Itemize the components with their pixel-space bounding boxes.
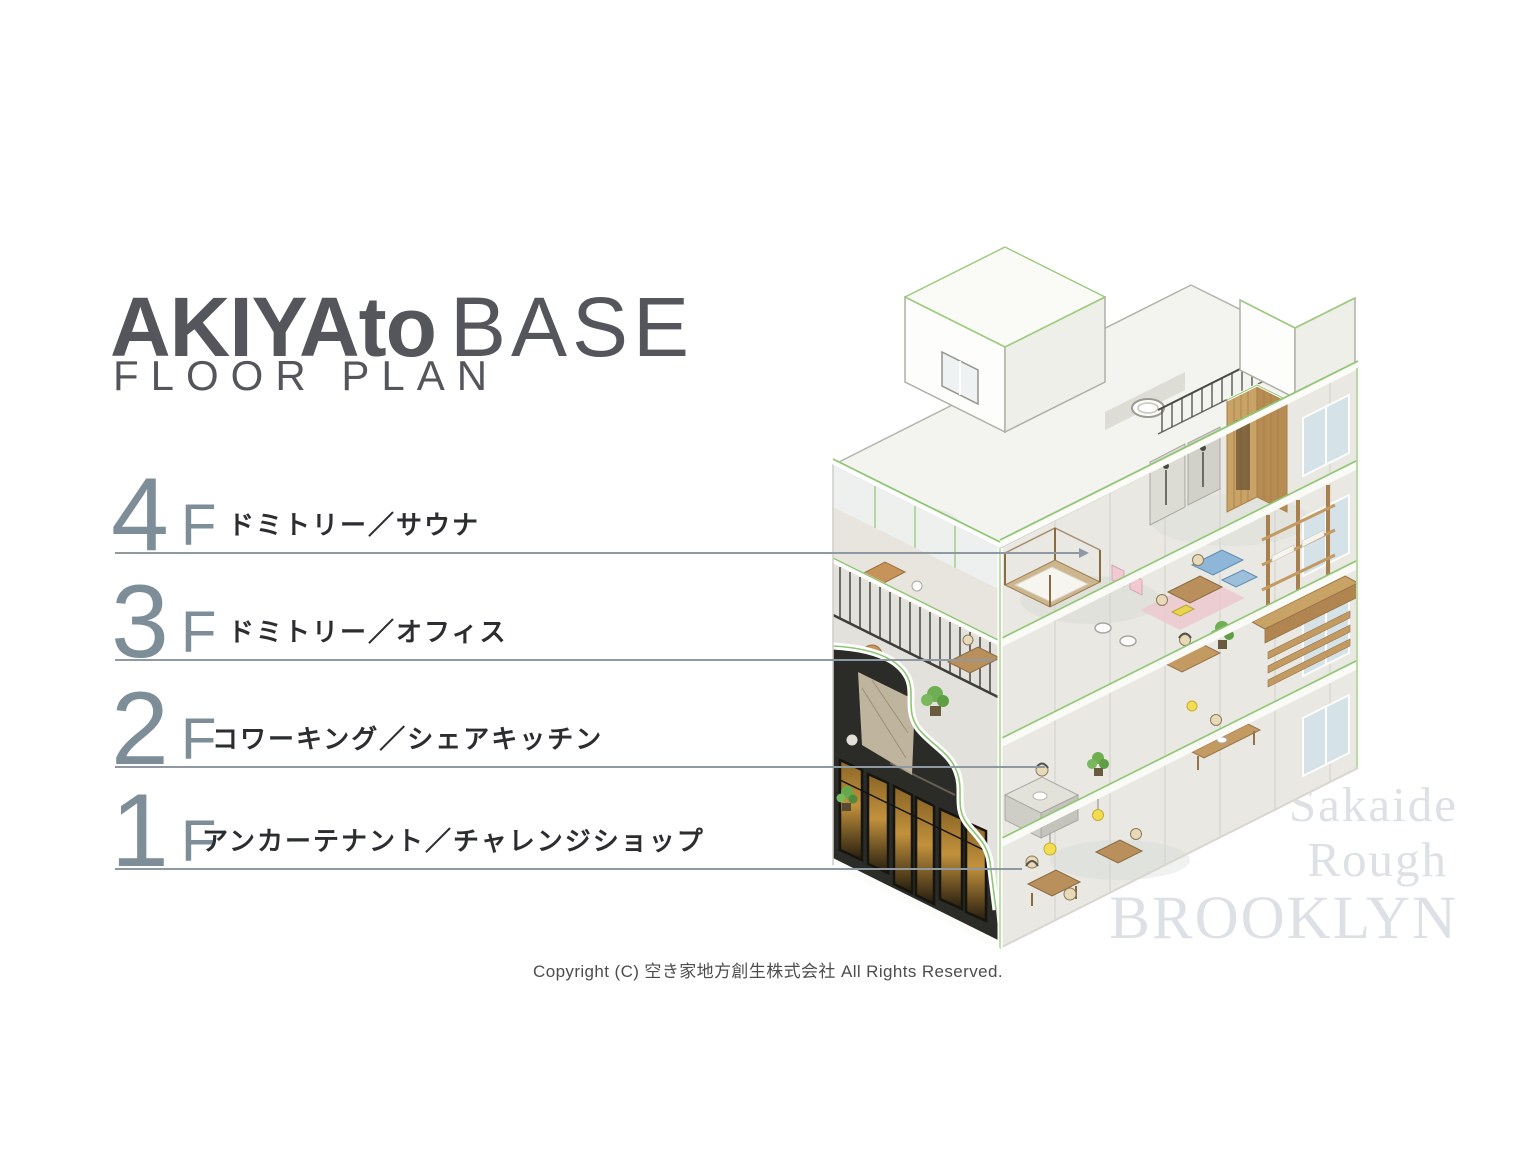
building-left-face — [833, 458, 1000, 949]
pendant-light — [1093, 810, 1104, 821]
shop-sign-logo — [847, 735, 858, 746]
pendant-light — [1044, 843, 1056, 855]
roof-bathtub — [1132, 399, 1164, 417]
slide-canvas: AKIYAtoBASE FLOOR PLAN 4 F ドミトリー／サウナ 3 F… — [0, 0, 1536, 1152]
building-cutaway-illustration — [0, 0, 1536, 1152]
